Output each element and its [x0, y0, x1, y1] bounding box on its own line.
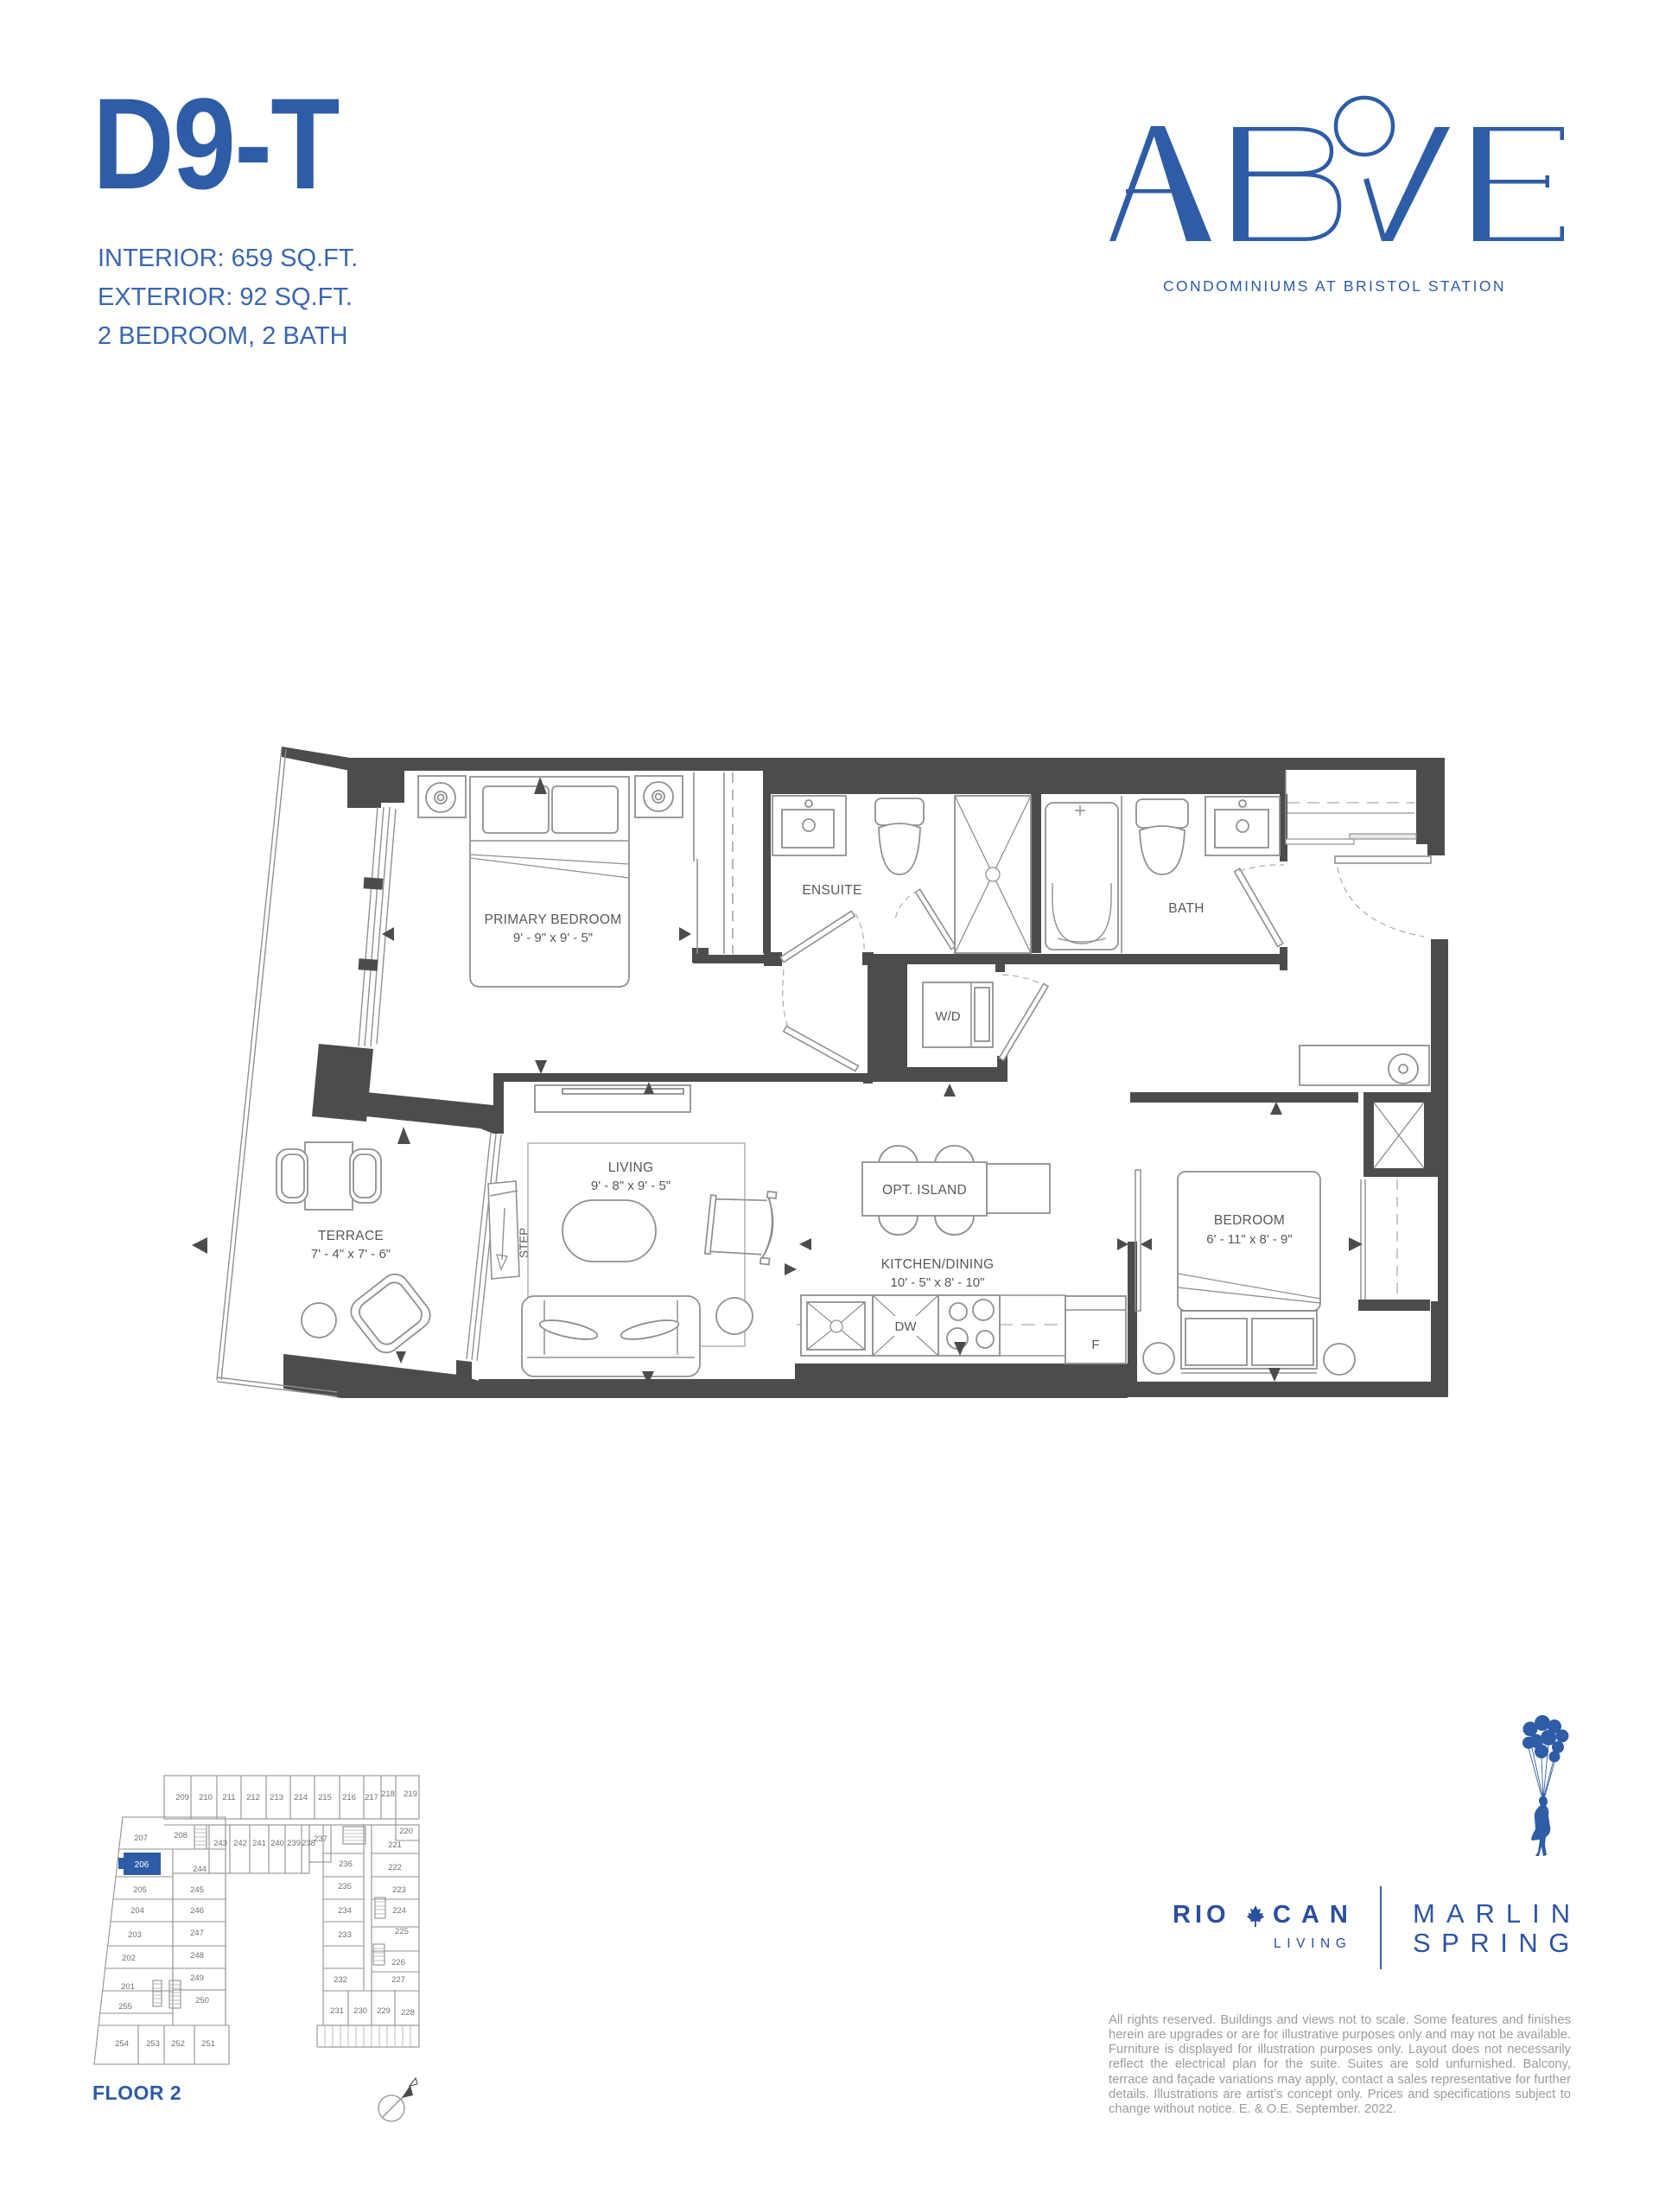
svg-text:LIVING: LIVING	[608, 1160, 654, 1175]
svg-text:246: 246	[190, 1906, 204, 1916]
svg-text:207: 207	[134, 1834, 148, 1843]
svg-text:BEDROOM: BEDROOM	[1214, 1213, 1285, 1228]
svg-text:214: 214	[294, 1793, 308, 1802]
svg-text:204: 204	[130, 1906, 144, 1916]
svg-text:OPT. ISLAND: OPT. ISLAND	[882, 1183, 967, 1198]
svg-text:226: 226	[391, 1958, 405, 1967]
svg-text:221: 221	[388, 1840, 402, 1850]
svg-text:216: 216	[342, 1793, 356, 1802]
svg-text:BATH: BATH	[1168, 901, 1204, 916]
svg-text:243: 243	[213, 1839, 227, 1848]
svg-text:249: 249	[190, 1974, 204, 1983]
svg-text:245: 245	[190, 1885, 204, 1895]
svg-text:239: 239	[287, 1839, 301, 1848]
svg-text:230: 230	[353, 2006, 367, 2016]
svg-text:250: 250	[195, 1996, 209, 2005]
svg-text:219: 219	[404, 1789, 417, 1799]
svg-text:235: 235	[338, 1882, 352, 1891]
svg-text:DW: DW	[895, 1319, 918, 1334]
svg-text:209: 209	[175, 1793, 189, 1802]
svg-text:244: 244	[193, 1865, 207, 1874]
svg-text:242: 242	[233, 1839, 247, 1848]
svg-text:232: 232	[334, 1975, 347, 1985]
svg-text:240: 240	[270, 1839, 284, 1848]
svg-text:7' - 4" x 7' - 6": 7' - 4" x 7' - 6"	[311, 1247, 391, 1262]
svg-text:212: 212	[246, 1793, 260, 1802]
svg-text:247: 247	[190, 1929, 204, 1938]
svg-text:236: 236	[339, 1859, 353, 1869]
svg-text:206: 206	[135, 1860, 149, 1870]
svg-text:202: 202	[122, 1954, 136, 1963]
svg-text:6' - 11" x 8' - 9": 6' - 11" x 8' - 9"	[1206, 1232, 1292, 1247]
svg-text:223: 223	[392, 1885, 406, 1895]
svg-text:9' - 9" x 9' - 5": 9' - 9" x 9' - 5"	[513, 931, 593, 945]
svg-text:STEP: STEP	[518, 1228, 531, 1258]
svg-text:254: 254	[115, 2039, 129, 2049]
svg-text:252: 252	[171, 2039, 185, 2049]
svg-text:253: 253	[146, 2039, 160, 2049]
svg-text:237: 237	[314, 1834, 327, 1844]
svg-text:255: 255	[118, 2002, 132, 2012]
svg-text:208: 208	[174, 1831, 188, 1840]
svg-text:248: 248	[190, 1951, 204, 1961]
svg-text:F: F	[1091, 1338, 1099, 1352]
svg-text:229: 229	[377, 2006, 391, 2016]
svg-text:227: 227	[391, 1975, 405, 1985]
svg-text:215: 215	[318, 1793, 332, 1802]
svg-text:233: 233	[338, 1930, 352, 1940]
svg-text:PRIMARY BEDROOM: PRIMARY BEDROOM	[485, 912, 622, 927]
svg-text:TERRACE: TERRACE	[318, 1229, 384, 1243]
svg-text:231: 231	[330, 2006, 344, 2016]
svg-text:205: 205	[133, 1885, 147, 1895]
svg-text:241: 241	[252, 1839, 266, 1848]
svg-text:224: 224	[392, 1906, 406, 1916]
svg-text:222: 222	[388, 1863, 402, 1872]
svg-text:9' - 8" x 9' - 5": 9' - 8" x 9' - 5"	[591, 1179, 671, 1193]
svg-text:225: 225	[395, 1927, 409, 1936]
svg-text:203: 203	[128, 1930, 142, 1940]
svg-text:211: 211	[222, 1793, 235, 1802]
svg-text:228: 228	[401, 2008, 415, 2018]
svg-text:ENSUITE: ENSUITE	[802, 883, 861, 898]
svg-text:201: 201	[121, 1982, 135, 1992]
svg-text:W/D: W/D	[935, 1009, 960, 1024]
svg-text:KITCHEN/DINING: KITCHEN/DINING	[881, 1257, 995, 1272]
svg-text:234: 234	[338, 1906, 352, 1916]
svg-text:217: 217	[365, 1793, 378, 1802]
svg-text:218: 218	[381, 1789, 395, 1799]
svg-text:213: 213	[270, 1793, 283, 1802]
svg-text:210: 210	[199, 1793, 213, 1802]
svg-text:220: 220	[399, 1827, 413, 1836]
svg-text:10' - 5" x 8' - 10": 10' - 5" x 8' - 10"	[891, 1275, 985, 1290]
svg-text:251: 251	[201, 2039, 215, 2049]
